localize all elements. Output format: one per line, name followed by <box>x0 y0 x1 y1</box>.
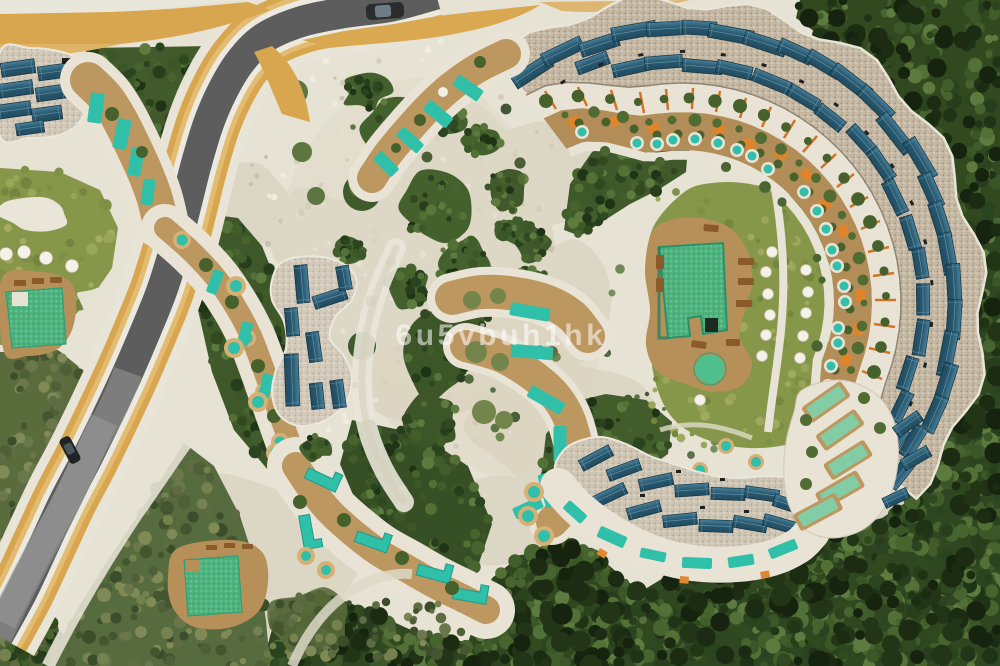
svg-text:6u5vbuh1hk: 6u5vbuh1hk <box>395 319 606 352</box>
